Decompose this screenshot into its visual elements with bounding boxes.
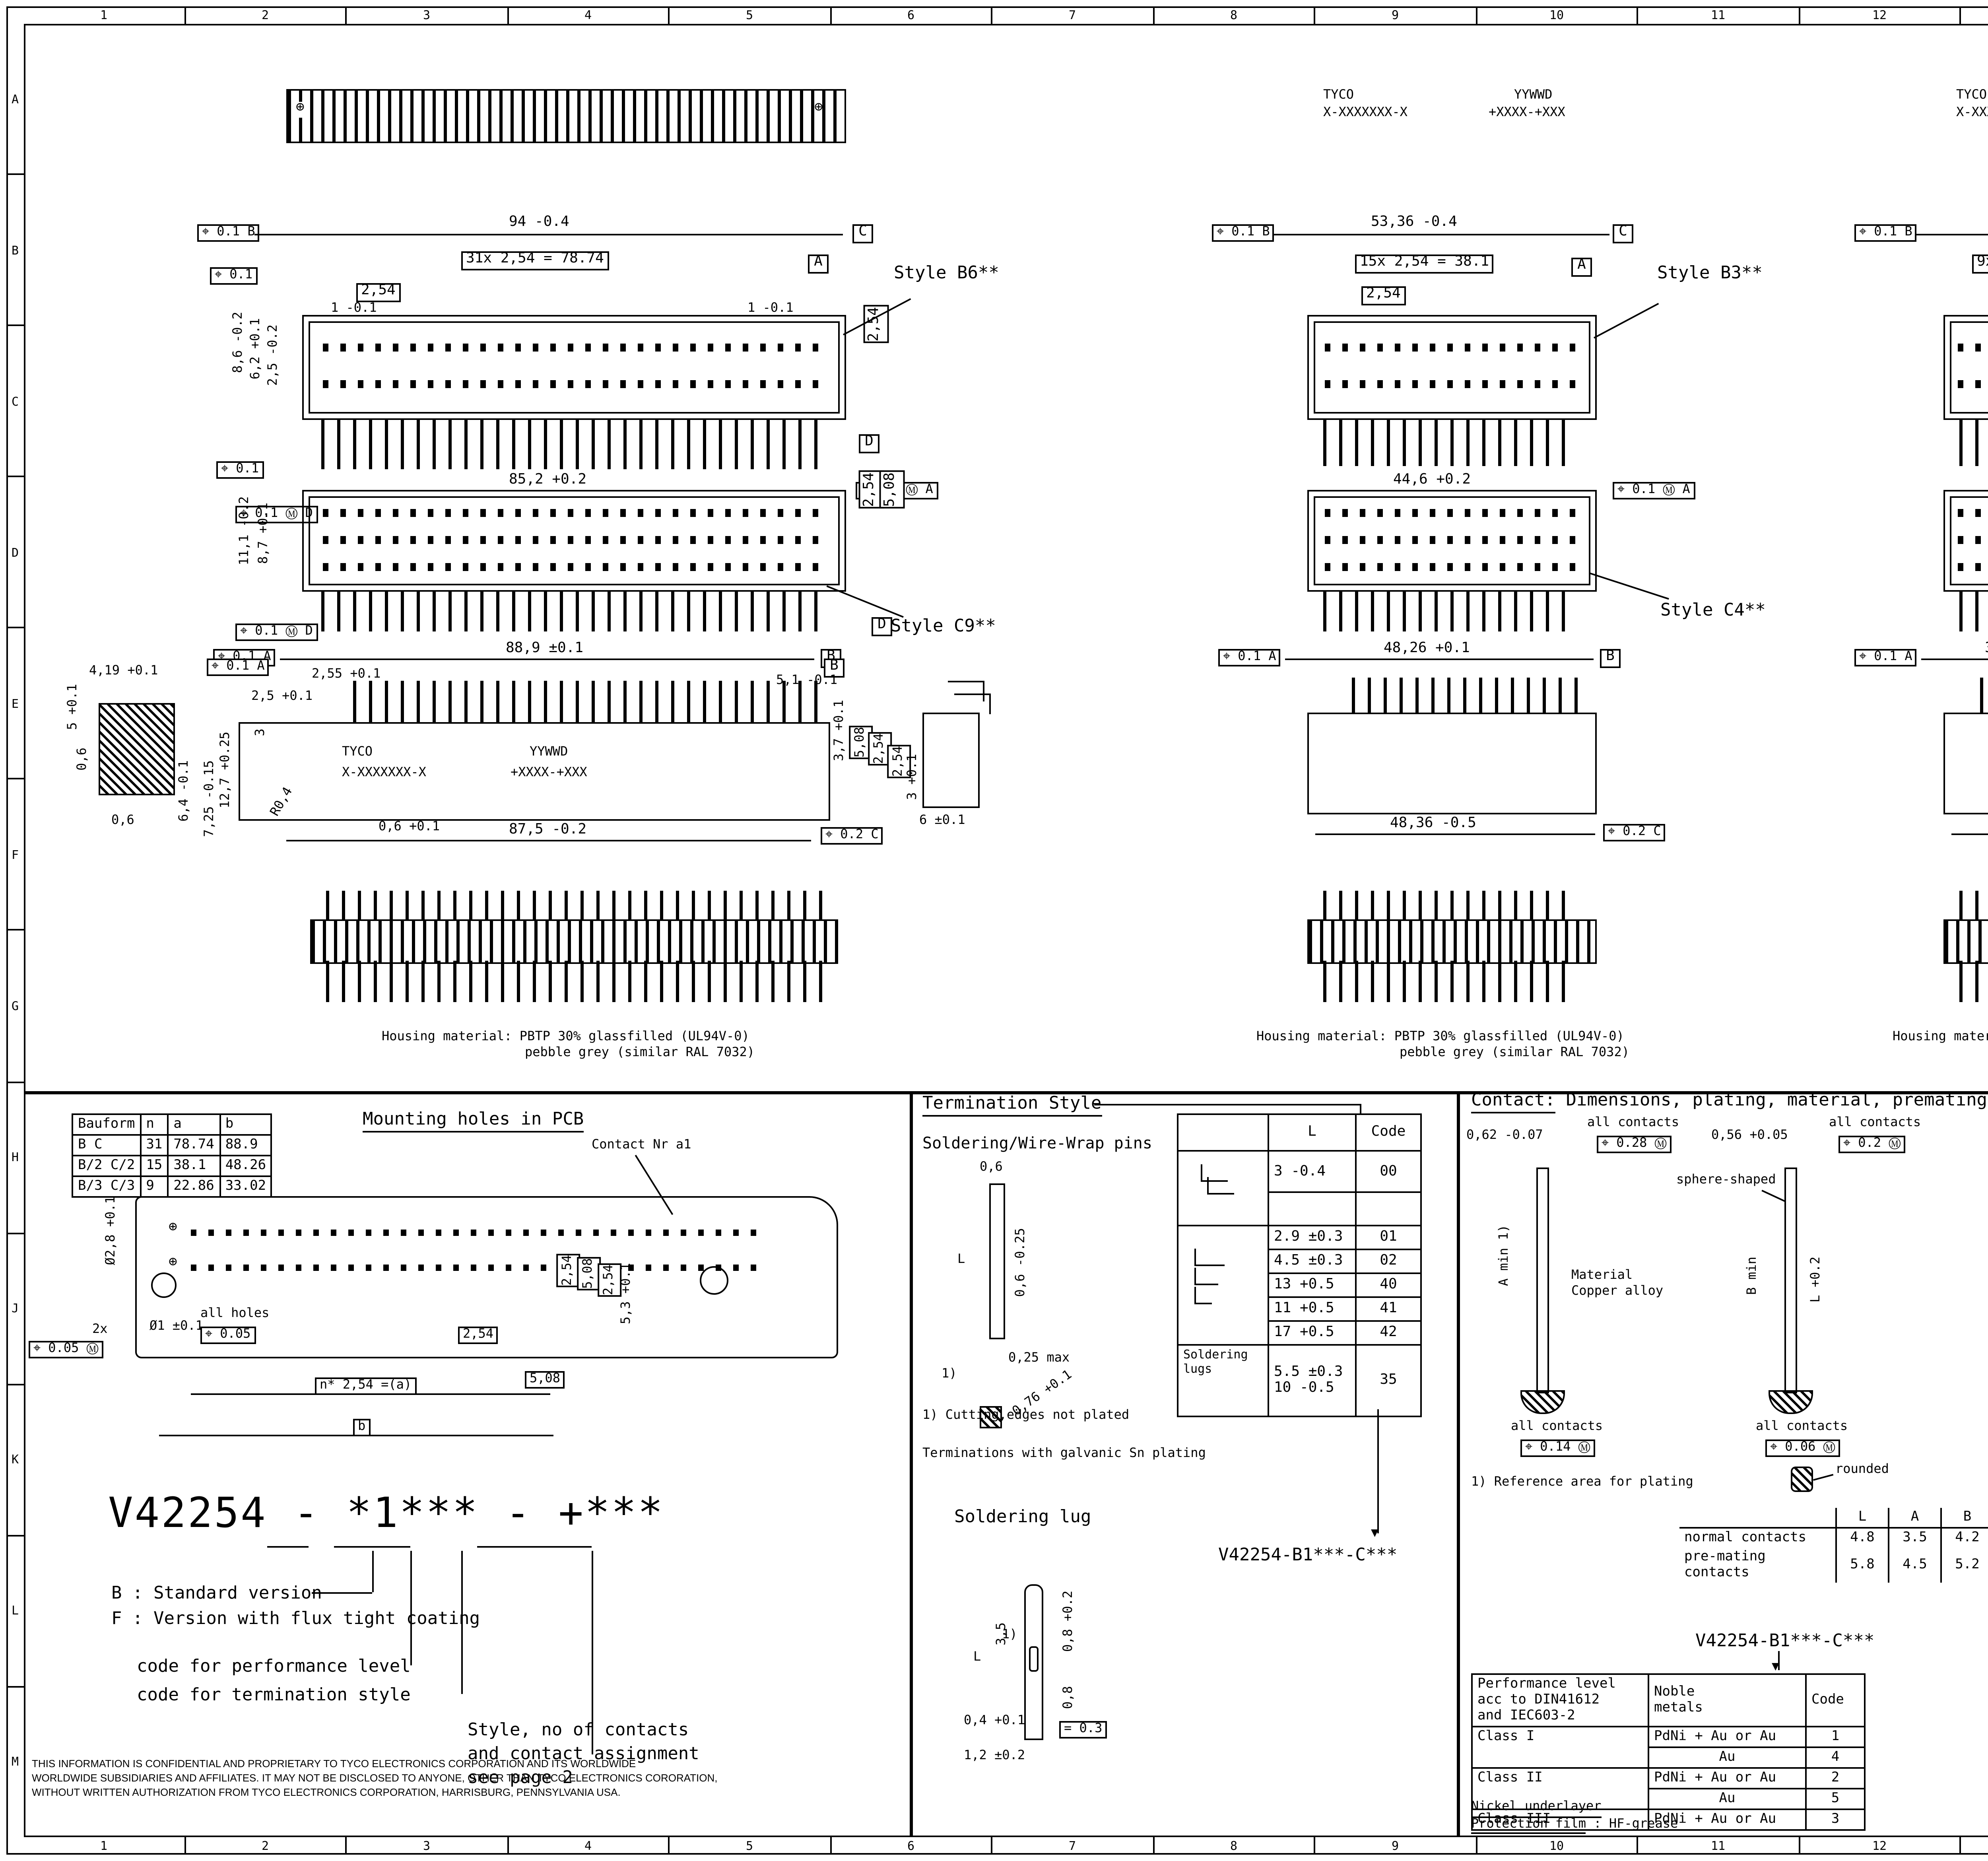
- bauform-table: Bauform n a b B C 31 78.74 88.9 B/2 C/2 …: [72, 1113, 272, 1198]
- datum-c: C: [1613, 224, 1633, 243]
- grid-row-label: H: [6, 1082, 24, 1234]
- dim: 12,7 +0.25: [219, 732, 233, 808]
- contact-title: Contact: Dimensions, plating, material, …: [1471, 1091, 1987, 1110]
- style-label-b3: Style B3**: [1657, 264, 1763, 283]
- grid-col-label: 9: [1315, 6, 1477, 24]
- brand-pn: X-XXXXXXX-X: [1323, 107, 1408, 120]
- c3-contact-row-c: [1958, 509, 1988, 517]
- contact-pin-right: [1784, 1167, 1797, 1393]
- dim-pitch-eq: 15x 2,54 = 38.1: [1355, 254, 1494, 274]
- pn-term-line: code for termination style: [137, 1686, 411, 1705]
- rounded-label: rounded: [1835, 1463, 1889, 1477]
- termination-L: 13 +0.5: [1268, 1273, 1356, 1297]
- lab-val: 5.8: [1836, 1548, 1889, 1583]
- c9-contact-row-a: [323, 563, 825, 571]
- brand-tyco: TYCO: [1956, 89, 1987, 103]
- grid-row-label: G: [6, 931, 24, 1082]
- dim: 5 +0.1: [67, 684, 81, 730]
- perf-header-1: Performance level: [1477, 1676, 1643, 1692]
- soldering-lugs-label: Soldering lugs: [1178, 1345, 1268, 1416]
- grid-col-label: 7: [992, 6, 1154, 24]
- material-label-1: Material: [1571, 1269, 1633, 1283]
- grid-col-label: 4: [508, 1837, 670, 1855]
- grid-ruler-top: 12345678910111213141516: [24, 6, 1988, 25]
- grid-col-label: 2: [185, 1837, 347, 1855]
- dim-line: [1285, 659, 1594, 660]
- pn-f-line: F : Version with flux tight coating: [111, 1610, 480, 1629]
- bauform-cell: 48.26: [220, 1156, 272, 1176]
- dim: 4,19 +0.1: [89, 665, 158, 679]
- dim-pitch-eq: 31x 2,54 = 78.74: [461, 251, 609, 270]
- termination-L: 5.5 ±0.3 10 -0.5: [1268, 1345, 1356, 1416]
- ww-right-top-comb: [1959, 891, 1988, 919]
- lug-dim-1: 5.5 ±0.3: [1274, 1365, 1350, 1381]
- grid-row-label: D: [6, 478, 24, 629]
- perf-code: 4: [1806, 1747, 1865, 1768]
- dim: 0,8: [1062, 1686, 1076, 1709]
- grid-row-label: M: [6, 1687, 24, 1837]
- grid-ruler-bottom: 12345678910111213141516: [24, 1836, 1988, 1855]
- dim-height-1: 11,1 -0.2: [239, 496, 252, 565]
- arrow-down-icon: ▼: [1371, 1527, 1378, 1541]
- note-ref: 1): [942, 1368, 957, 1382]
- c9-body: [302, 490, 846, 592]
- c4-contact-row-c: [1325, 509, 1579, 517]
- grid-col-label: 4: [508, 6, 670, 24]
- perf-metal: Au: [1648, 1789, 1806, 1809]
- dim-pitch: 2,54: [356, 283, 400, 302]
- style-label-b6: Style B6**: [894, 264, 999, 283]
- ww-mid-body: [1307, 919, 1597, 964]
- grid-col-label: 5: [670, 1837, 831, 1855]
- all-contacts-label: all contacts: [1587, 1117, 1679, 1131]
- dim-n-pitch: n* 2,54 =(a): [315, 1377, 416, 1395]
- grid-row-label: F: [6, 780, 24, 931]
- bauform-header: b: [220, 1114, 272, 1135]
- dim: 6 ±0.1: [919, 814, 965, 828]
- dim: 3 +0.1: [907, 754, 920, 800]
- datum-a: A: [1571, 258, 1592, 277]
- dim-height-3: 2,5 -0.2: [267, 324, 281, 386]
- grid-ruler-left: ABCDEFGHJKLM: [6, 24, 25, 1837]
- contact-nr-label: Contact Nr a1: [592, 1139, 691, 1153]
- contact-pin-left: [1536, 1167, 1549, 1393]
- grid-col-label: 13: [1961, 6, 1988, 24]
- ww-left-bottom-comb: [326, 961, 835, 1002]
- b6-pin-comb: [321, 418, 827, 469]
- fcf-position: ⌖ 0.1: [216, 461, 264, 478]
- termination-code: 00: [1356, 1151, 1421, 1192]
- dim-line: [286, 840, 811, 841]
- perf-header-2: metals: [1654, 1700, 1800, 1716]
- brand-tyco: TYCO: [342, 746, 373, 760]
- dim: 0,6: [76, 748, 90, 771]
- grid-col-label: 13: [1961, 1837, 1988, 1855]
- fcf-position: ⌖ 0.1 A: [1218, 649, 1281, 666]
- panel-divider: [1457, 1091, 1459, 1837]
- ww-right-body: [1943, 919, 1988, 964]
- pn-underline: [267, 1546, 309, 1548]
- grid-col-label: 10: [1477, 1837, 1638, 1855]
- lab-val: 4.2: [1941, 1528, 1988, 1548]
- termination-table: L Code 3 -0.4 00 2.9 ±0.3 01 4.5 ±0.3 02…: [1177, 1113, 1422, 1417]
- datum-d: D: [872, 617, 892, 636]
- fcf-position: ⌖ 0.06 Ⓜ: [1765, 1439, 1840, 1457]
- all-contacts-label: all contacts: [1756, 1420, 1848, 1434]
- c4-side-body: [1307, 713, 1597, 814]
- pn-leader: [1377, 1409, 1379, 1533]
- screw-hole-icon: ⊕: [296, 102, 305, 118]
- dim: 0,4 +0.1: [964, 1715, 1025, 1729]
- dim: Ø2,8 +0.1: [105, 1196, 119, 1265]
- fcf-position: ⌖ 0.05: [200, 1327, 255, 1344]
- perf-code: 5: [1806, 1789, 1865, 1809]
- datum-c: C: [852, 224, 873, 243]
- c4-body: [1307, 490, 1597, 592]
- pn-underline: [477, 1546, 592, 1548]
- bauform-cell: 38.1: [168, 1156, 219, 1176]
- dim-line: [1315, 833, 1595, 835]
- bauform-cell: 9: [140, 1176, 168, 1197]
- bauform-header: a: [168, 1114, 219, 1135]
- grid-col-label: 5: [670, 6, 831, 24]
- dim: 0,56 +0.05: [1711, 1129, 1788, 1143]
- b6-contact-row-b: [323, 380, 825, 388]
- bauform-cell: B/2 C/2: [72, 1156, 140, 1176]
- grid-col-label: 2: [185, 6, 347, 24]
- arrow-down-icon: ▼: [1772, 1661, 1779, 1675]
- confidential-note: THIS INFORMATION IS CONFIDENTIAL AND PRO…: [32, 1759, 636, 1771]
- lab-col: B: [1941, 1508, 1988, 1528]
- lab-val: 4.8: [1836, 1528, 1889, 1548]
- fcf-position: ⌖ 0.1 B: [197, 224, 260, 241]
- fcf-parallel: = 0.3: [1059, 1721, 1107, 1738]
- dim-height-1: 8,6 -0.2: [232, 312, 246, 373]
- dim-line: [254, 234, 843, 235]
- contact-title-rest: Dimensions, plating, material, premating: [1566, 1090, 1987, 1110]
- confidential-note: WITHOUT WRITTEN AUTHORIZATION FROM TYCO …: [32, 1788, 621, 1799]
- housing-note: Housing material: PBTP 30% glassfilled (…: [382, 1031, 749, 1045]
- pn-leader: [410, 1551, 412, 1665]
- grid-col-label: 3: [347, 1837, 508, 1855]
- perf-header-1: and IEC603-2: [1477, 1708, 1643, 1724]
- termination-code: 41: [1356, 1297, 1421, 1321]
- ww-mid-top-comb: [1323, 891, 1578, 919]
- perf-class: Class I: [1472, 1727, 1648, 1768]
- grid-col-label: 1: [24, 1837, 185, 1855]
- termination-code: 02: [1356, 1249, 1421, 1273]
- lug-drawing: [1024, 1584, 1043, 1740]
- style-label-c9: Style C9**: [891, 617, 996, 636]
- perf-metal: PdNi + Au or Au: [1648, 1768, 1806, 1789]
- grid-col-label: 7: [992, 1837, 1154, 1855]
- perf-metal: PdNi + Au or Au: [1648, 1727, 1806, 1747]
- drawing-sheet: 12345678910111213141516 1234567891011121…: [0, 0, 1988, 1861]
- dim: 87,5 -0.2: [509, 824, 586, 840]
- dim-total: 53,36 -0.4: [1371, 216, 1457, 232]
- grid-col-label: 8: [1154, 1837, 1315, 1855]
- dim: 5,1 -0.1: [776, 674, 837, 688]
- dim: 5,08: [577, 1257, 601, 1290]
- grid-row-label: J: [6, 1234, 24, 1385]
- lug-hole: [1029, 1646, 1039, 1672]
- right-angle-view-body: [922, 713, 980, 808]
- lab-row-label: normal contacts: [1679, 1528, 1836, 1548]
- contact-title-head: Contact:: [1471, 1090, 1555, 1113]
- dim-end-left: 1 -0.1: [331, 302, 377, 316]
- perf-code: 2: [1806, 1768, 1865, 1789]
- fcf-position: ⌖ 0.05 Ⓜ: [29, 1341, 103, 1358]
- housing-note: pebble grey (similar RAL 7032): [525, 1047, 755, 1061]
- perf-header-1: acc to DIN41612: [1477, 1692, 1643, 1708]
- c3-side-body: [1943, 713, 1988, 814]
- bauform-cell: B/3 C/3: [72, 1176, 140, 1197]
- grid-col-label: 6: [831, 6, 992, 24]
- b2-pin-comb: [1959, 418, 1988, 466]
- ww-left-top-comb: [326, 891, 835, 919]
- dim-line: [1951, 833, 1988, 835]
- panel-divider: [910, 1091, 912, 1837]
- screw-hole-icon: ⊕: [169, 1222, 177, 1237]
- straight-pin-icon: [1207, 1177, 1234, 1195]
- termination-title: Termination Style: [922, 1094, 1101, 1117]
- fcf-position: ⌖ 0.1 Ⓜ A: [1613, 482, 1695, 499]
- dim-b: 48,26 +0.1: [1384, 643, 1470, 659]
- dim: 2,54: [557, 1253, 580, 1287]
- dim: 2x: [92, 1323, 108, 1337]
- bauform-header: n: [140, 1114, 168, 1135]
- bent-pin-icon: [954, 694, 991, 714]
- dim-line: [280, 659, 814, 660]
- fcf-position: ⌖ 0.1 A: [1854, 649, 1917, 666]
- b3-body-inner: [1314, 321, 1590, 414]
- pn-leader: [312, 1592, 372, 1594]
- pn-leader: [592, 1551, 593, 1754]
- material-label-2: Copper alloy: [1571, 1285, 1663, 1299]
- pn-style-line-1: Style, no of contacts: [468, 1721, 689, 1740]
- dim: 1,2 ±0.2: [964, 1750, 1025, 1764]
- bauform-header: Bauform: [72, 1114, 140, 1135]
- lab-col: A: [1889, 1508, 1941, 1528]
- all-contacts-label: all contacts: [1511, 1420, 1603, 1434]
- termination-note-2: Terminations with galvanic Sn plating: [922, 1447, 1206, 1461]
- dim: 2,54: [598, 1263, 621, 1297]
- ww-mid-bottom-comb: [1323, 961, 1578, 1002]
- b2-body-inner: [1950, 321, 1988, 414]
- termination-code: 35: [1356, 1345, 1421, 1416]
- dim-b: 88,9 ±0.1: [506, 643, 583, 659]
- b6-top-comb: [286, 89, 846, 143]
- pn-leader: [372, 1551, 374, 1592]
- termination-part-number: V42254-B1***-C***: [1218, 1546, 1397, 1565]
- termination-note-1: 1) Cutting,edges not plated: [922, 1409, 1129, 1423]
- fcf-position: ⌖ 0.1 B: [1212, 224, 1275, 241]
- housing-note: pebble grey (similar RAL 7032): [1400, 1047, 1629, 1061]
- dim-height-2: 6,2 +0.1: [250, 318, 264, 379]
- dim-line: [1915, 234, 1988, 235]
- fcf-position: ⌖ 0.14 Ⓜ: [1520, 1439, 1595, 1457]
- c3-body: [1943, 490, 1988, 592]
- b3-contact-row-a: [1325, 344, 1579, 352]
- dim-l: L +0.2: [1810, 1257, 1824, 1303]
- dim-L: L: [957, 1253, 965, 1267]
- c3-pin-comb: [1959, 590, 1988, 631]
- housing-note: Housing material: PBTP 30% glassfilled (…: [1893, 1031, 1988, 1045]
- dim-line: [1921, 659, 1988, 660]
- contact-part-number: V42254-B1***-C***: [1695, 1632, 1874, 1651]
- termination-col-L: L: [1268, 1114, 1356, 1151]
- dim: 0,6 +0.1: [379, 821, 440, 835]
- grid-col-label: 11: [1638, 1837, 1800, 1855]
- pin-drawing: [989, 1183, 1005, 1339]
- dim: 3,7 +0.1: [833, 700, 847, 761]
- protection-film-label: Protection film: [1471, 1816, 1586, 1834]
- bauform-cell: 88.9: [220, 1135, 272, 1156]
- pn-perf-line: code for performance level: [137, 1657, 411, 1676]
- bauform-cell: B C: [72, 1135, 140, 1156]
- c4-side-pin-comb: [1352, 678, 1590, 713]
- pn-underline: [334, 1546, 410, 1548]
- termination-L: 2.9 ±0.3: [1268, 1226, 1356, 1249]
- dim: 0,8 +0.2: [1062, 1591, 1076, 1652]
- grid-col-label: 12: [1800, 6, 1961, 24]
- mount-hole-circle: [700, 1266, 728, 1295]
- fcf-position: ⌖ 0.1 B: [1854, 224, 1917, 241]
- grid-col-label: 11: [1638, 6, 1800, 24]
- fcf-position: ⌖ 0.1: [210, 267, 257, 284]
- termination-L: 4.5 ±0.3: [1268, 1249, 1356, 1273]
- termination-code: 42: [1356, 1321, 1421, 1345]
- style-label-c4: Style C4**: [1660, 601, 1766, 620]
- grid-row-label: K: [6, 1385, 24, 1536]
- b6-body-inner: [309, 321, 840, 414]
- bauform-cell: 22.86: [168, 1176, 219, 1197]
- dim: 6,4 -0.1: [178, 760, 192, 822]
- plating-note: 1) Reference area for plating: [1471, 1476, 1693, 1490]
- brand-date: YYWWD: [530, 746, 568, 760]
- solder-wirewrap-label: Soldering/Wire-Wrap pins: [922, 1136, 1152, 1153]
- dim-b-min: B min: [1746, 1257, 1760, 1295]
- c9-contact-row-b: [323, 536, 825, 544]
- dim: 5,3 +0.1: [620, 1263, 634, 1324]
- dim: 48,36 -0.5: [1390, 818, 1476, 833]
- dim-vpitch-2: 5,08: [879, 471, 905, 509]
- c3-contact-row-a: [1958, 563, 1988, 571]
- c3-side-pin-comb: [1980, 678, 1988, 713]
- grid-row-label: C: [6, 326, 24, 478]
- perf-code: 1: [1806, 1727, 1865, 1747]
- c9-pin-comb: [321, 590, 827, 631]
- termination-L: 11 +0.5: [1268, 1297, 1356, 1321]
- wirewrap-pin-icon: [1194, 1287, 1212, 1304]
- dim-pitch: 2,54: [458, 1327, 498, 1344]
- bauform-cell: 33.02: [220, 1176, 272, 1197]
- dim: 0,6: [111, 814, 134, 828]
- wirewrap-pin-icon: [1194, 1249, 1225, 1266]
- dim-a-min: A min 1): [1498, 1225, 1512, 1286]
- lab-col: L: [1836, 1508, 1889, 1528]
- dim: 0,62 -0.07: [1466, 1129, 1543, 1143]
- datum-d: D: [859, 434, 879, 453]
- b6-body: [302, 315, 846, 420]
- dim-b: 33,02 +0.1: [1985, 643, 1988, 659]
- dim: 5,08: [525, 1371, 565, 1388]
- nickel-underlayer-note: Nickel underlayer: [1471, 1801, 1602, 1818]
- all-holes-label: all holes: [200, 1307, 269, 1321]
- b3-body: [1307, 315, 1597, 420]
- dim-bottom: 85,2 +0.2: [509, 474, 586, 490]
- fcf-position: ⌖ 0.2 Ⓜ: [1839, 1136, 1905, 1153]
- dim: 3: [254, 728, 268, 736]
- b3-contact-row-b: [1325, 380, 1579, 388]
- b3-pin-comb: [1323, 418, 1578, 466]
- lab-val: 5.2: [1941, 1548, 1988, 1583]
- perf-header-2: Noble: [1654, 1684, 1800, 1700]
- perf-header-3: Code: [1806, 1674, 1865, 1727]
- protection-film-note: Protection film : HF-grease: [1471, 1818, 1678, 1832]
- brand-pn: X-XXXXXXX-X: [1956, 107, 1988, 120]
- mounting-holes-title: Mounting holes in PCB: [363, 1110, 584, 1133]
- grid-col-label: 12: [1800, 1837, 1961, 1855]
- rounded-square: [1791, 1467, 1813, 1492]
- perf-metal: Au: [1648, 1747, 1806, 1768]
- c9-side-pin-comb: [353, 681, 824, 722]
- lab-val: 4.5: [1889, 1548, 1941, 1583]
- grid-row-label: E: [6, 629, 24, 780]
- lab-val: 3.5: [1889, 1528, 1941, 1548]
- fcf-position: ⌖ 0.1 A: [207, 659, 270, 676]
- termination-col-code: Code: [1356, 1114, 1421, 1151]
- perf-code: 3: [1806, 1809, 1865, 1830]
- grid-col-label: 8: [1154, 6, 1315, 24]
- grid-row-label: B: [6, 175, 24, 326]
- brand-lot: +XXXX-+XXX: [511, 767, 587, 781]
- dim: 0,6 -0.25: [1015, 1228, 1029, 1297]
- dim-total: 94 -0.4: [509, 216, 569, 232]
- bauform-cell: 31: [140, 1135, 168, 1156]
- wirewrap-pin-icon: [1194, 1268, 1218, 1285]
- c9-contact-row-c: [323, 509, 825, 517]
- housing-note: Housing material: PBTP 30% glassfilled (…: [1256, 1031, 1624, 1045]
- all-contacts-label: all contacts: [1829, 1117, 1921, 1131]
- end-view-body: [99, 703, 175, 795]
- brand-pn: X-XXXXXXX-X: [342, 767, 426, 781]
- pcb-hole-row-1: [191, 1230, 763, 1236]
- soldering-lug-title: Soldering lug: [954, 1508, 1091, 1527]
- termination-code: 01: [1356, 1226, 1421, 1249]
- b2-contact-row-a: [1958, 344, 1988, 352]
- brand-tyco: TYCO: [1323, 89, 1354, 103]
- screw-hole-icon: ⊕: [169, 1257, 177, 1272]
- dim: 2,55 +0.1: [312, 668, 381, 682]
- grid-col-label: 6: [831, 1837, 992, 1855]
- brand-lot: +XXXX-+XXX: [1489, 107, 1565, 120]
- dim-pitch-eq: 9x 2,54 = 22.86: [1972, 254, 1988, 274]
- mount-hole-circle: [151, 1272, 177, 1298]
- grid-col-label: 10: [1477, 6, 1638, 24]
- confidential-note: WORLDWIDE SUBSIDIARIES AND AFFILIATES. I…: [32, 1774, 718, 1785]
- datum-b: B: [1600, 649, 1621, 668]
- c3-contact-row-b: [1958, 536, 1988, 544]
- b6-contact-row-a: [323, 344, 825, 352]
- termination-code: 40: [1356, 1273, 1421, 1297]
- dim: 2,5 +0.1: [251, 690, 313, 704]
- grid-col-label: 1: [24, 6, 185, 24]
- dim-line: [1272, 234, 1609, 235]
- dim-pitch: 2,54: [1361, 286, 1406, 305]
- bauform-cell: 15: [140, 1156, 168, 1176]
- dim-L: L: [973, 1651, 981, 1665]
